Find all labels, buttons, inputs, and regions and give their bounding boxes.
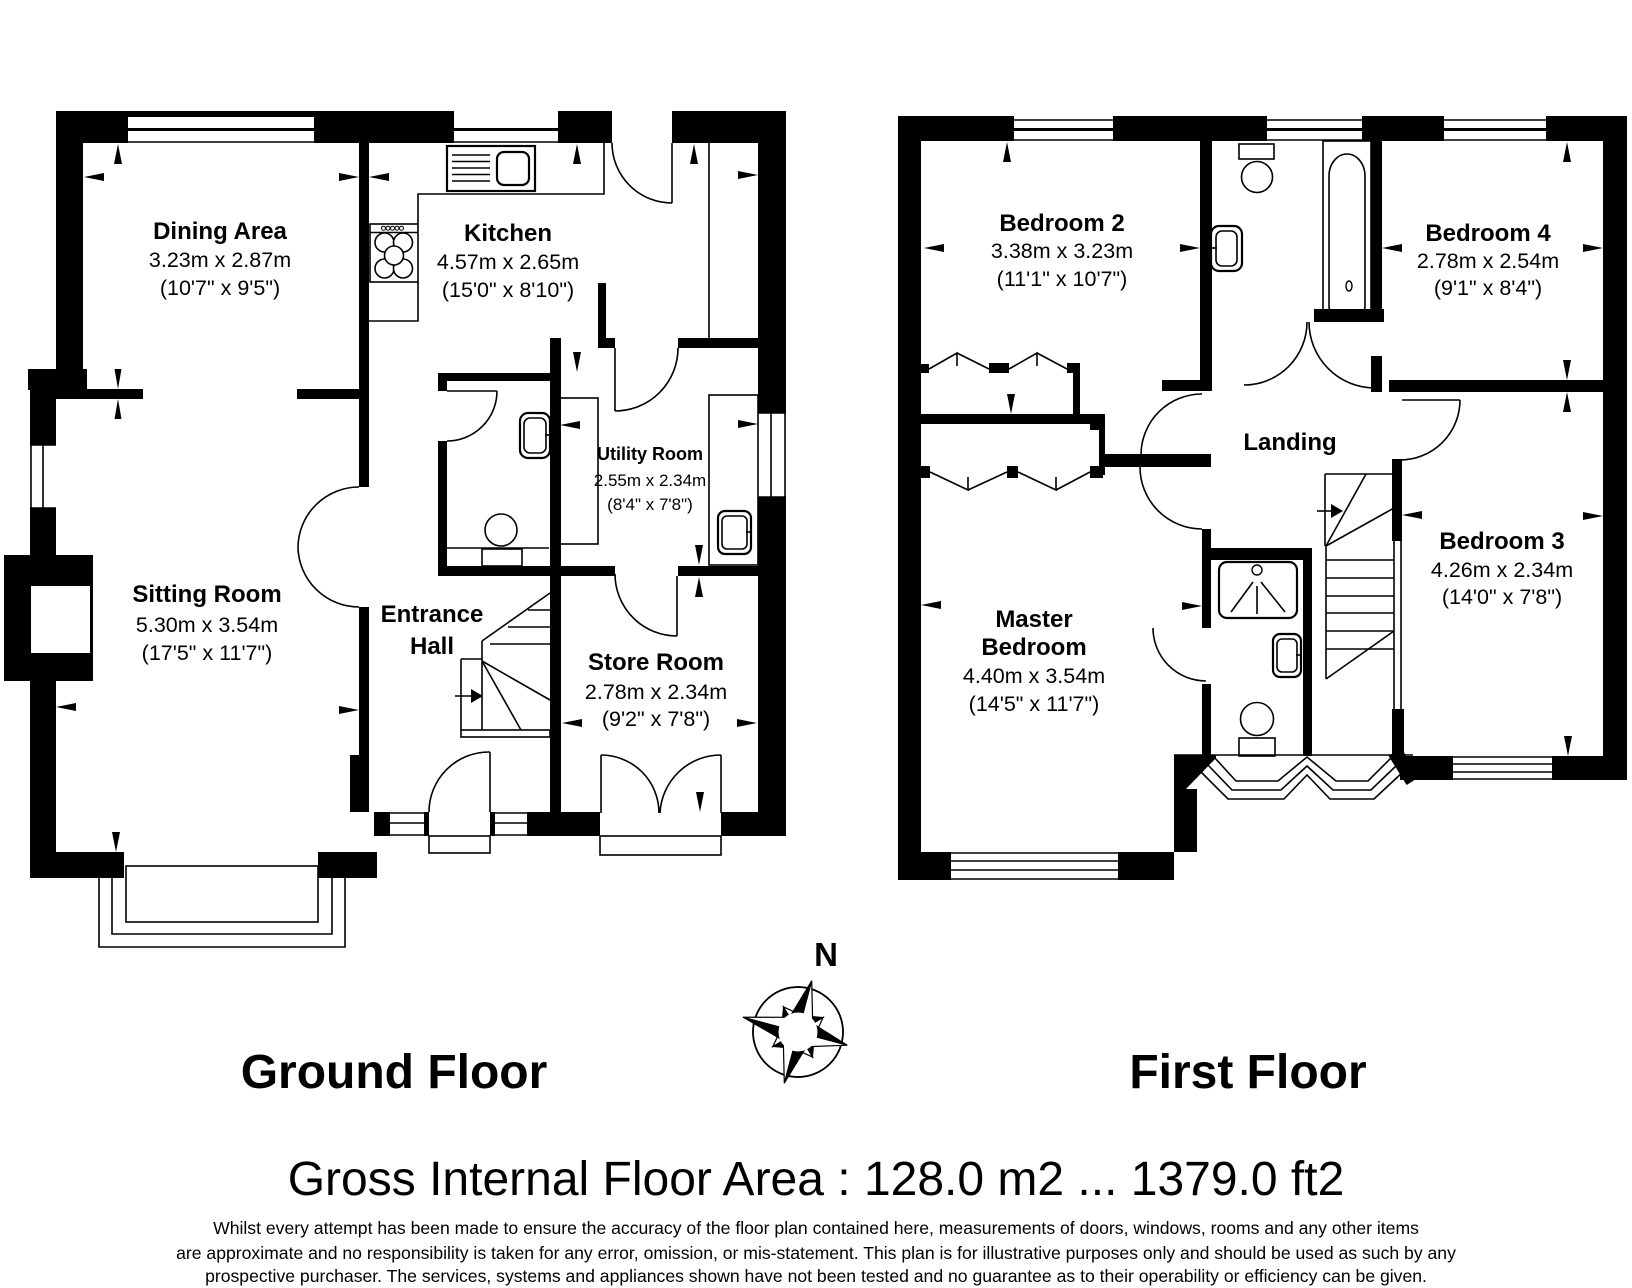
svg-text:4.57m x 2.65m: 4.57m x 2.65m [437,250,579,274]
svg-text:(10'7" x 9'5"): (10'7" x 9'5") [160,276,280,300]
svg-text:Dining Area: Dining Area [153,218,287,245]
svg-text:(17'5" x 11'7"): (17'5" x 11'7") [142,641,273,665]
svg-text:Master: Master [995,606,1072,633]
svg-text:2.78m x 2.54m: 2.78m x 2.54m [1417,249,1559,273]
svg-text:Gross Internal Floor Area : 12: Gross Internal Floor Area : 128.0 m2 ...… [288,1153,1345,1206]
svg-text:First Floor: First Floor [1129,1046,1366,1099]
svg-text:Kitchen: Kitchen [464,220,552,247]
svg-text:(9'2" x 7'8"): (9'2" x 7'8") [602,707,710,731]
svg-text:Store Room: Store Room [588,649,724,676]
svg-text:Bedroom 2: Bedroom 2 [999,210,1124,237]
svg-text:prospective purchaser. The ser: prospective purchaser. The services, sys… [205,1266,1427,1286]
svg-text:Entrance: Entrance [381,601,484,628]
svg-text:(14'5" x 11'7"): (14'5" x 11'7") [969,692,1100,716]
svg-text:Utility Room: Utility Room [597,444,703,464]
svg-text:Whilst every attempt has been: Whilst every attempt has been made to en… [213,1218,1419,1238]
svg-text:(15'0" x 8'10"): (15'0" x 8'10") [442,278,574,302]
svg-text:(14'0" x 7'8"): (14'0" x 7'8") [1442,585,1562,609]
svg-text:Hall: Hall [410,633,454,660]
svg-text:(8'4" x 7'8"): (8'4" x 7'8") [607,495,693,514]
svg-text:are approximate and no respons: are approximate and no responsibility is… [176,1243,1456,1263]
svg-text:Sitting Room: Sitting Room [132,581,281,608]
svg-text:Bedroom 4: Bedroom 4 [1425,220,1551,247]
svg-text:3.38m x 3.23m: 3.38m x 3.23m [991,239,1133,263]
svg-text:(9'1" x 8'4"): (9'1" x 8'4") [1434,276,1542,300]
svg-text:5.30m x 3.54m: 5.30m x 3.54m [136,613,278,637]
svg-text:4.26m x 2.34m: 4.26m x 2.34m [1431,558,1573,582]
svg-text:Bedroom: Bedroom [981,634,1086,661]
svg-text:4.40m x 3.54m: 4.40m x 3.54m [963,664,1105,688]
svg-text:N: N [814,936,838,973]
svg-text:2.55m x 2.34m: 2.55m x 2.34m [594,471,706,490]
svg-text:Bedroom 3: Bedroom 3 [1439,528,1564,555]
svg-text:3.23m x 2.87m: 3.23m x 2.87m [149,248,291,272]
svg-text:2.78m x 2.34m: 2.78m x 2.34m [585,680,727,704]
svg-text:Landing: Landing [1243,429,1336,456]
svg-text:Ground Floor: Ground Floor [241,1046,548,1099]
svg-text:(11'1" x 10'7"): (11'1" x 10'7") [997,267,1128,291]
